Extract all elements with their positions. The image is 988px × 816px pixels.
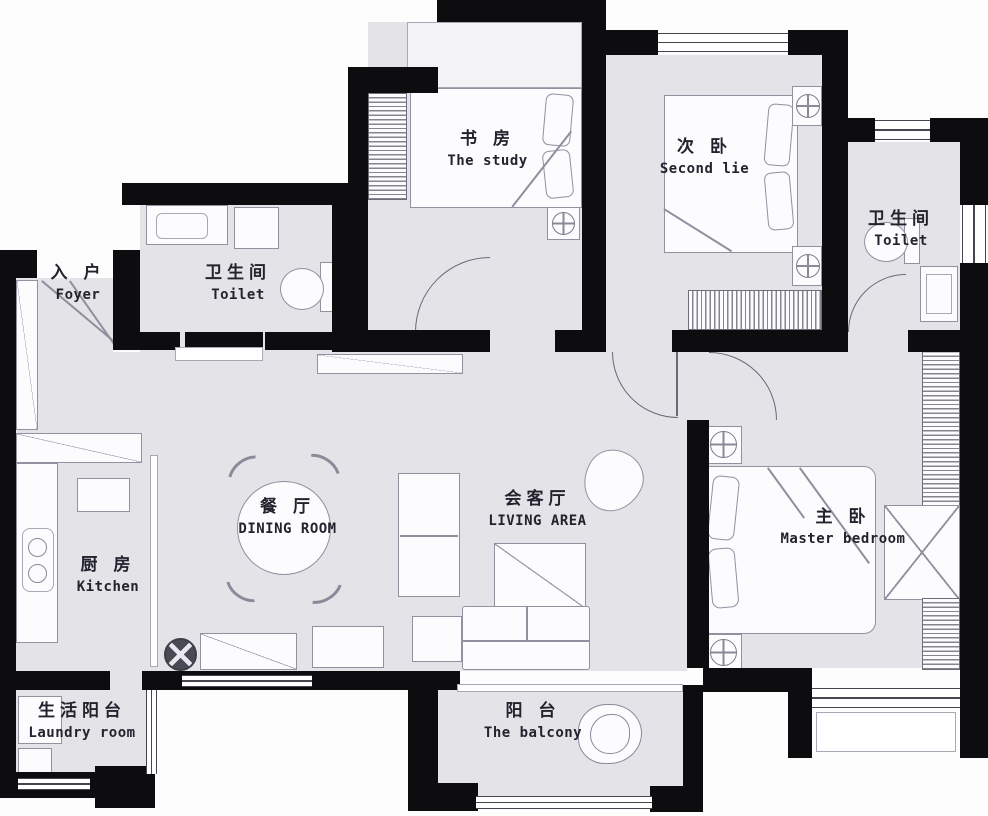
- room-name-en: Kitchen: [53, 579, 163, 595]
- wall: [348, 93, 368, 200]
- kitchen-counter: [16, 433, 142, 463]
- room-name-en: Second lie: [612, 161, 797, 177]
- room-name-en: Foyer: [28, 287, 128, 303]
- washer-box: [234, 207, 279, 249]
- room-name-en: Toilet: [183, 287, 293, 303]
- wall: [908, 330, 960, 352]
- label-living-area: 会客厅 LIVING AREA: [455, 484, 620, 529]
- wall: [265, 332, 350, 350]
- room-name-en: LIVING AREA: [455, 513, 620, 529]
- room-name-en: Toilet: [845, 233, 957, 249]
- floor-plan: 入 户 Foyer 卫生间 Toilet 书 房 The study 次 卧 S…: [0, 0, 988, 816]
- lamp-icon: [710, 431, 737, 458]
- wall: [14, 671, 110, 690]
- label-dining-room: 餐 厅 DINING ROOM: [200, 492, 375, 537]
- second-bedroom-door-arc: [612, 352, 678, 418]
- wall: [348, 67, 438, 93]
- ac-ledge: [816, 712, 956, 752]
- room-name-zh: 入 户: [28, 258, 128, 283]
- room-name-zh: 厨 房: [53, 550, 163, 575]
- label-toilet-b: 卫生间 Toilet: [845, 204, 957, 249]
- wall: [788, 692, 812, 758]
- balcony-threshold: [457, 684, 683, 692]
- wall: [606, 30, 658, 55]
- balcony-railing: [476, 796, 652, 809]
- shoe-cabinet: [317, 354, 463, 374]
- door-threshold: [175, 347, 263, 361]
- wardrobe: [922, 598, 960, 670]
- wall: [672, 330, 848, 352]
- label-balcony: 阳 台 The balcony: [438, 696, 628, 741]
- wall: [332, 330, 490, 352]
- window: [18, 778, 90, 790]
- window: [658, 33, 788, 52]
- wall: [822, 30, 848, 330]
- room-name-zh: 会客厅: [455, 484, 620, 509]
- wall: [185, 332, 263, 347]
- sink-bowl: [28, 564, 47, 583]
- wall: [848, 118, 875, 142]
- wall: [437, 0, 582, 22]
- label-second-bedroom: 次 卧 Second lie: [612, 132, 797, 177]
- label-study: 书 房 The study: [405, 124, 570, 169]
- coffee-table: [494, 543, 586, 609]
- label-kitchen: 厨 房 Kitchen: [53, 550, 163, 595]
- lamp-icon: [796, 94, 820, 118]
- toilet-b-door-arc: [848, 274, 906, 332]
- kitchen-box: [77, 478, 130, 512]
- door-leaf: [676, 352, 678, 416]
- room-name-en: Laundry room: [12, 725, 152, 741]
- pillow: [764, 171, 795, 231]
- sink: [156, 213, 208, 239]
- label-toilet-a: 卫生间 Toilet: [183, 258, 293, 303]
- wall: [683, 685, 703, 788]
- room-name-en: DINING ROOM: [200, 521, 375, 537]
- label-master-bedroom: 主 卧 Master bedroom: [738, 502, 948, 547]
- potted-plant: [164, 638, 197, 671]
- window: [812, 688, 960, 708]
- lamp-icon: [552, 212, 575, 235]
- wall: [555, 330, 606, 352]
- bench: [312, 626, 384, 668]
- master-door-arc: [709, 352, 777, 420]
- wall: [687, 420, 709, 668]
- room-name-en: The study: [405, 153, 570, 169]
- room-name-en: Master bedroom: [738, 531, 948, 547]
- wall: [122, 183, 350, 205]
- wall: [128, 332, 180, 350]
- cabinet: [200, 633, 297, 670]
- room-name-zh: 生活阳台: [12, 696, 152, 721]
- label-foyer: 入 户 Foyer: [28, 258, 128, 303]
- side-table: [412, 616, 462, 662]
- label-laundry: 生活阳台 Laundry room: [12, 696, 152, 741]
- wall: [332, 200, 368, 332]
- room-name-zh: 卫生间: [845, 204, 957, 229]
- wall: [703, 668, 812, 692]
- wardrobe: [688, 290, 822, 330]
- bookshelf: [368, 93, 407, 200]
- room-name-zh: 阳 台: [438, 696, 628, 721]
- wall: [408, 783, 478, 811]
- wall: [650, 786, 703, 812]
- lamp-icon: [710, 639, 737, 666]
- wall: [960, 263, 988, 758]
- room-name-zh: 书 房: [405, 124, 570, 149]
- wardrobe: [922, 347, 960, 507]
- wall: [960, 118, 988, 205]
- window: [182, 675, 312, 687]
- pillow: [707, 547, 739, 609]
- room-name-zh: 主 卧: [738, 502, 948, 527]
- window: [962, 205, 986, 263]
- room-name-zh: 卫生间: [183, 258, 293, 283]
- wall: [582, 0, 606, 332]
- study-door-arc: [415, 257, 490, 332]
- room-name-en: The balcony: [438, 725, 628, 741]
- room-name-zh: 餐 厅: [200, 492, 375, 517]
- lamp-icon: [796, 254, 820, 278]
- window: [875, 120, 930, 140]
- sink-bowl: [28, 538, 47, 557]
- wall: [408, 690, 438, 788]
- room-name-zh: 次 卧: [612, 132, 797, 157]
